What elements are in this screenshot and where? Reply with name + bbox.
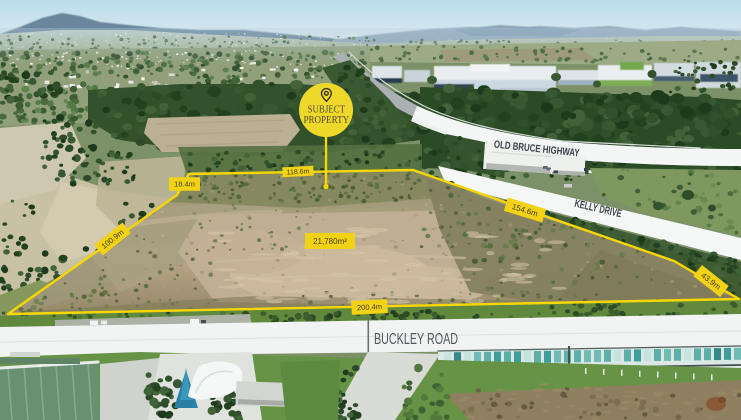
svg-text:118.6m: 118.6m <box>286 168 309 176</box>
svg-text:21,780m²: 21,780m² <box>313 237 347 246</box>
svg-text:200.4m: 200.4m <box>357 302 382 312</box>
svg-text:BUCKLEY ROAD: BUCKLEY ROAD <box>374 331 458 348</box>
svg-text:18.4m: 18.4m <box>174 180 195 189</box>
svg-text:PROPERTY: PROPERTY <box>303 115 349 126</box>
